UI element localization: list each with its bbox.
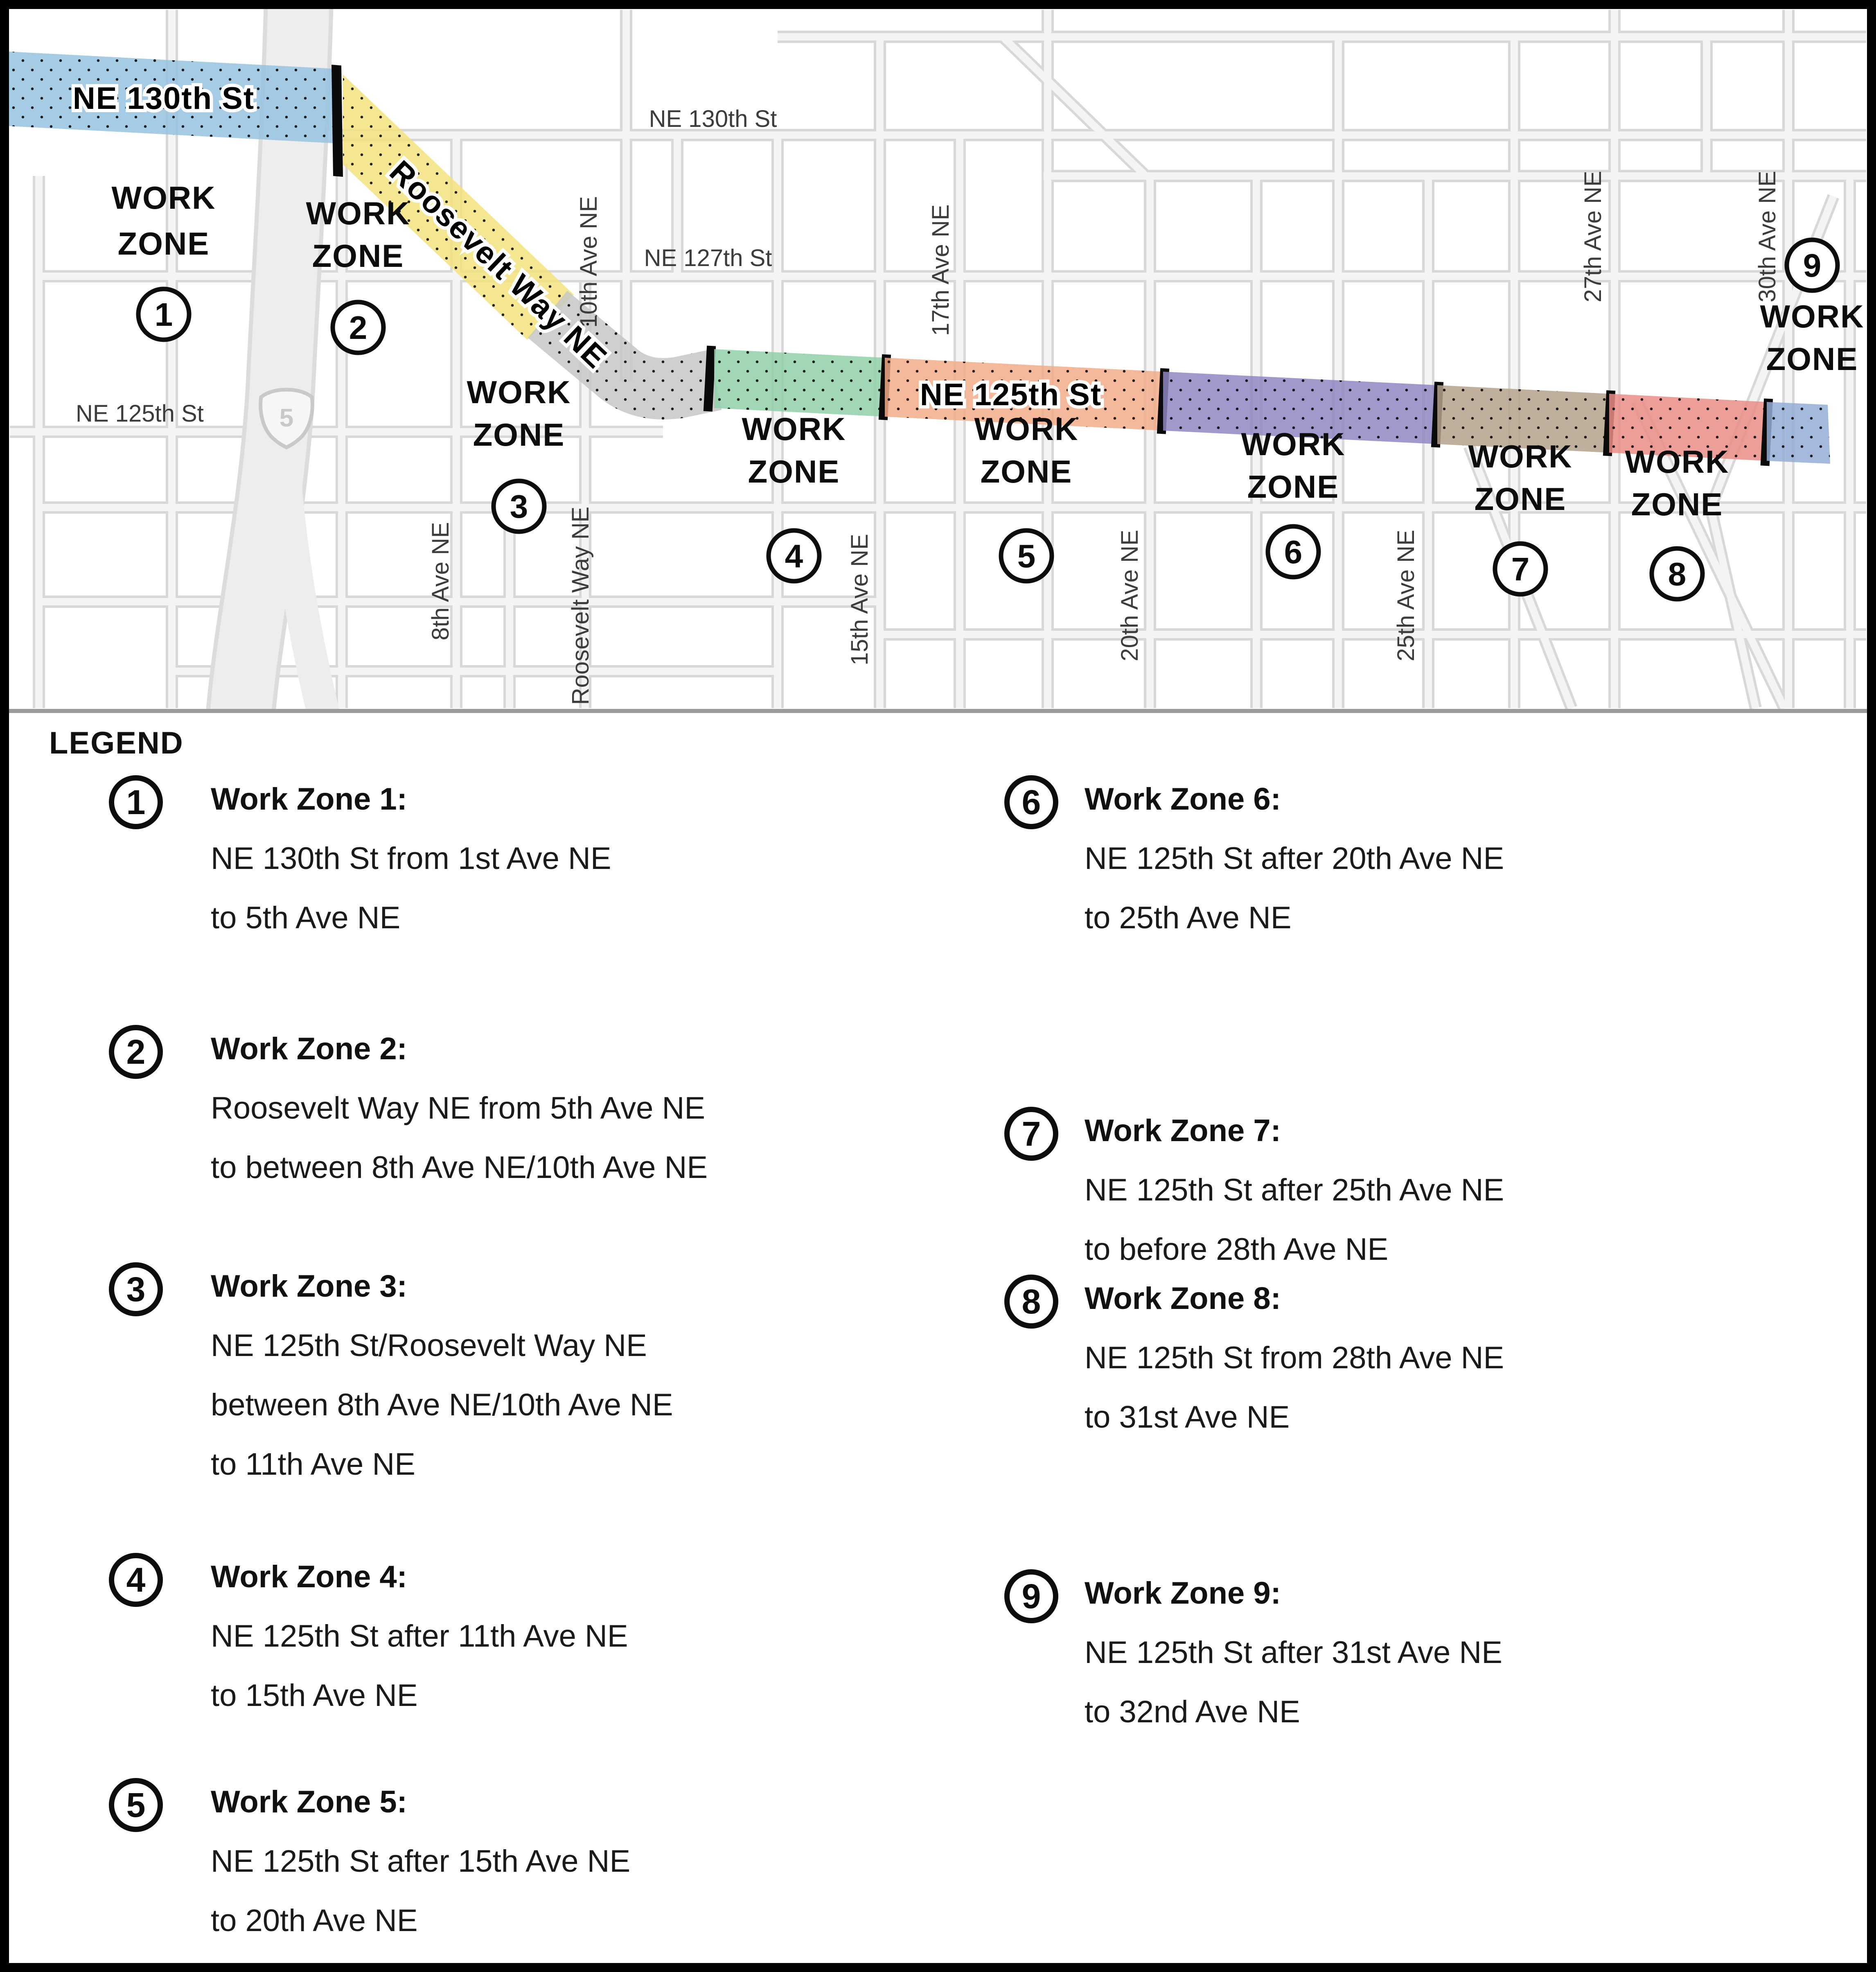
legend-item-7-line: NE 125th St after 25th Ave NE <box>1085 1160 1504 1220</box>
street-label-ne-127th: NE 127th St <box>644 245 772 271</box>
wz6-word2: ZONE <box>1247 469 1339 505</box>
legend-item-2-title: Work Zone 2: <box>211 1019 708 1079</box>
wz5-number: 5 <box>1017 538 1036 574</box>
wz7-word1: WORK <box>1468 438 1573 474</box>
legend-item-7-number: 7 <box>1022 1114 1041 1154</box>
street-label-15th-ave: 15th Ave NE <box>846 534 873 665</box>
street-label-17th-ave: 17th Ave NE <box>927 204 954 336</box>
legend-item-2-number: 2 <box>126 1032 146 1072</box>
interstate-5-number: 5 <box>280 404 293 432</box>
legend-item-5-title: Work Zone 5: <box>211 1772 630 1832</box>
wz8-number: 8 <box>1668 556 1687 592</box>
street-label-30th-ave: 30th Ave NE <box>1754 171 1781 302</box>
wz7-number: 7 <box>1511 551 1530 587</box>
legend-item-5-line: to 20th Ave NE <box>211 1891 630 1950</box>
wz1-number: 1 <box>155 296 173 333</box>
zone-divider-1-2 <box>331 65 343 177</box>
legend-item-6-number: 6 <box>1022 783 1041 822</box>
street-label-20th-ave: 20th Ave NE <box>1116 530 1143 661</box>
work-zone-map-page: 5 <box>0 0 1876 1972</box>
legend-item-7-badge: 7 <box>1004 1107 1058 1161</box>
legend-item-3-title: Work Zone 3: <box>211 1257 673 1316</box>
legend-item-6-title: Work Zone 6: <box>1085 769 1504 829</box>
legend-item-3: 3 Work Zone 3: NE 125th St/Roosevelt Way… <box>109 1257 673 1494</box>
legend-item-1-number: 1 <box>126 783 146 822</box>
wz8-word2: ZONE <box>1631 486 1723 522</box>
street-label-27th-ave: 27th Ave NE <box>1580 171 1606 302</box>
legend-item-3-number: 3 <box>126 1270 146 1309</box>
wz1-word1: WORK <box>112 180 216 216</box>
wz7-word2: ZONE <box>1475 481 1567 517</box>
legend-item-9-number: 9 <box>1022 1577 1041 1616</box>
wz4-number: 4 <box>785 538 803 574</box>
legend: LEGEND 1 Work Zone 1: NE 130th St from 1… <box>0 713 1876 1972</box>
legend-item-7-title: Work Zone 7: <box>1085 1101 1504 1160</box>
wz2-number: 2 <box>349 309 368 346</box>
wz3-number: 3 <box>510 488 528 525</box>
wz5-word2: ZONE <box>981 454 1073 490</box>
legend-item-4: 4 Work Zone 4: NE 125th St after 11th Av… <box>109 1547 628 1725</box>
legend-item-6-line: NE 125th St after 20th Ave NE <box>1085 829 1504 888</box>
wz6-word1: WORK <box>1241 426 1346 462</box>
legend-item-8-title: Work Zone 8: <box>1085 1269 1504 1328</box>
legend-item-4-title: Work Zone 4: <box>211 1547 628 1606</box>
wz3-word1: WORK <box>467 374 571 410</box>
legend-item-1-title: Work Zone 1: <box>211 769 611 829</box>
legend-item-8-line: to 31st Ave NE <box>1085 1388 1504 1447</box>
street-label-8th-ave: 8th Ave NE <box>427 522 454 640</box>
wz4-word2: ZONE <box>748 454 840 490</box>
legend-item-1-badge: 1 <box>109 775 163 829</box>
legend-item-5-number: 5 <box>126 1785 146 1825</box>
legend-item-6: 6 Work Zone 6: NE 125th St after 20th Av… <box>1004 769 1504 948</box>
wz1-word2: ZONE <box>118 226 210 262</box>
street-label-ne-130th: NE 130th St <box>649 106 777 132</box>
wz8-word1: WORK <box>1625 444 1729 480</box>
street-label-ne-125th: NE 125th St <box>76 400 204 427</box>
wz2-word2: ZONE <box>312 238 404 274</box>
legend-item-3-line: between 8th Ave NE/10th Ave NE <box>211 1375 673 1435</box>
band-label-ne-130th: NE 130th St <box>73 81 255 116</box>
work-zone-4-band <box>714 349 885 417</box>
legend-item-2-line: Roosevelt Way NE from 5th Ave NE <box>211 1079 708 1138</box>
wz6-number: 6 <box>1284 534 1303 570</box>
legend-item-7: 7 Work Zone 7: NE 125th St after 25th Av… <box>1004 1101 1504 1279</box>
legend-item-8-number: 8 <box>1022 1282 1041 1322</box>
wz9-word1: WORK <box>1760 298 1865 334</box>
legend-item-2-line: to between 8th Ave NE/10th Ave NE <box>211 1138 708 1197</box>
legend-item-5-line: NE 125th St after 15th Ave NE <box>211 1832 630 1891</box>
legend-item-8-line: NE 125th St from 28th Ave NE <box>1085 1328 1504 1388</box>
legend-item-5-badge: 5 <box>109 1778 163 1832</box>
legend-item-2: 2 Work Zone 2: Roosevelt Way NE from 5th… <box>109 1019 708 1197</box>
work-zone-9-band <box>1767 402 1830 464</box>
map-legend-divider <box>9 709 1867 713</box>
legend-item-6-line: to 25th Ave NE <box>1085 888 1504 948</box>
street-label-10th-ave: 10th Ave NE <box>575 196 602 327</box>
legend-item-8: 8 Work Zone 8: NE 125th St from 28th Ave… <box>1004 1269 1504 1447</box>
legend-item-1-line: NE 130th St from 1st Ave NE <box>211 829 611 888</box>
legend-item-2-badge: 2 <box>109 1025 163 1079</box>
wz5-word1: WORK <box>974 411 1079 447</box>
legend-item-9-line: NE 125th St after 31st Ave NE <box>1085 1623 1502 1682</box>
legend-item-9-badge: 9 <box>1004 1569 1058 1623</box>
legend-item-5: 5 Work Zone 5: NE 125th St after 15th Av… <box>109 1772 630 1950</box>
wz4-word1: WORK <box>742 411 846 447</box>
legend-item-8-badge: 8 <box>1004 1275 1058 1329</box>
band-label-ne-125th: NE 125th St <box>920 377 1102 412</box>
street-map: 5 <box>0 0 1876 713</box>
legend-item-3-line: to 11th Ave NE <box>211 1435 673 1494</box>
legend-item-1: 1 Work Zone 1: NE 130th St from 1st Ave … <box>109 769 611 948</box>
legend-heading: LEGEND <box>49 725 184 761</box>
wz9-number: 9 <box>1803 247 1822 284</box>
legend-item-9: 9 Work Zone 9: NE 125th St after 31st Av… <box>1004 1564 1502 1742</box>
legend-item-3-badge: 3 <box>109 1262 163 1316</box>
legend-item-9-title: Work Zone 9: <box>1085 1564 1502 1623</box>
wz3-word2: ZONE <box>473 417 565 453</box>
street-label-25th-ave: 25th Ave NE <box>1393 530 1419 661</box>
legend-item-4-badge: 4 <box>109 1553 163 1607</box>
legend-item-4-number: 4 <box>126 1560 146 1600</box>
legend-item-6-badge: 6 <box>1004 775 1058 829</box>
legend-item-9-line: to 32nd Ave NE <box>1085 1682 1502 1742</box>
street-label-roosevelt-south: Roosevelt Way NE <box>567 507 594 705</box>
legend-item-3-line: NE 125th St/Roosevelt Way NE <box>211 1316 673 1375</box>
wz9-word2: ZONE <box>1766 341 1858 377</box>
wz2-word1: WORK <box>306 195 410 231</box>
legend-item-1-line: to 5th Ave NE <box>211 888 611 948</box>
legend-item-4-line: NE 125th St after 11th Ave NE <box>211 1606 628 1666</box>
legend-item-4-line: to 15th Ave NE <box>211 1666 628 1725</box>
